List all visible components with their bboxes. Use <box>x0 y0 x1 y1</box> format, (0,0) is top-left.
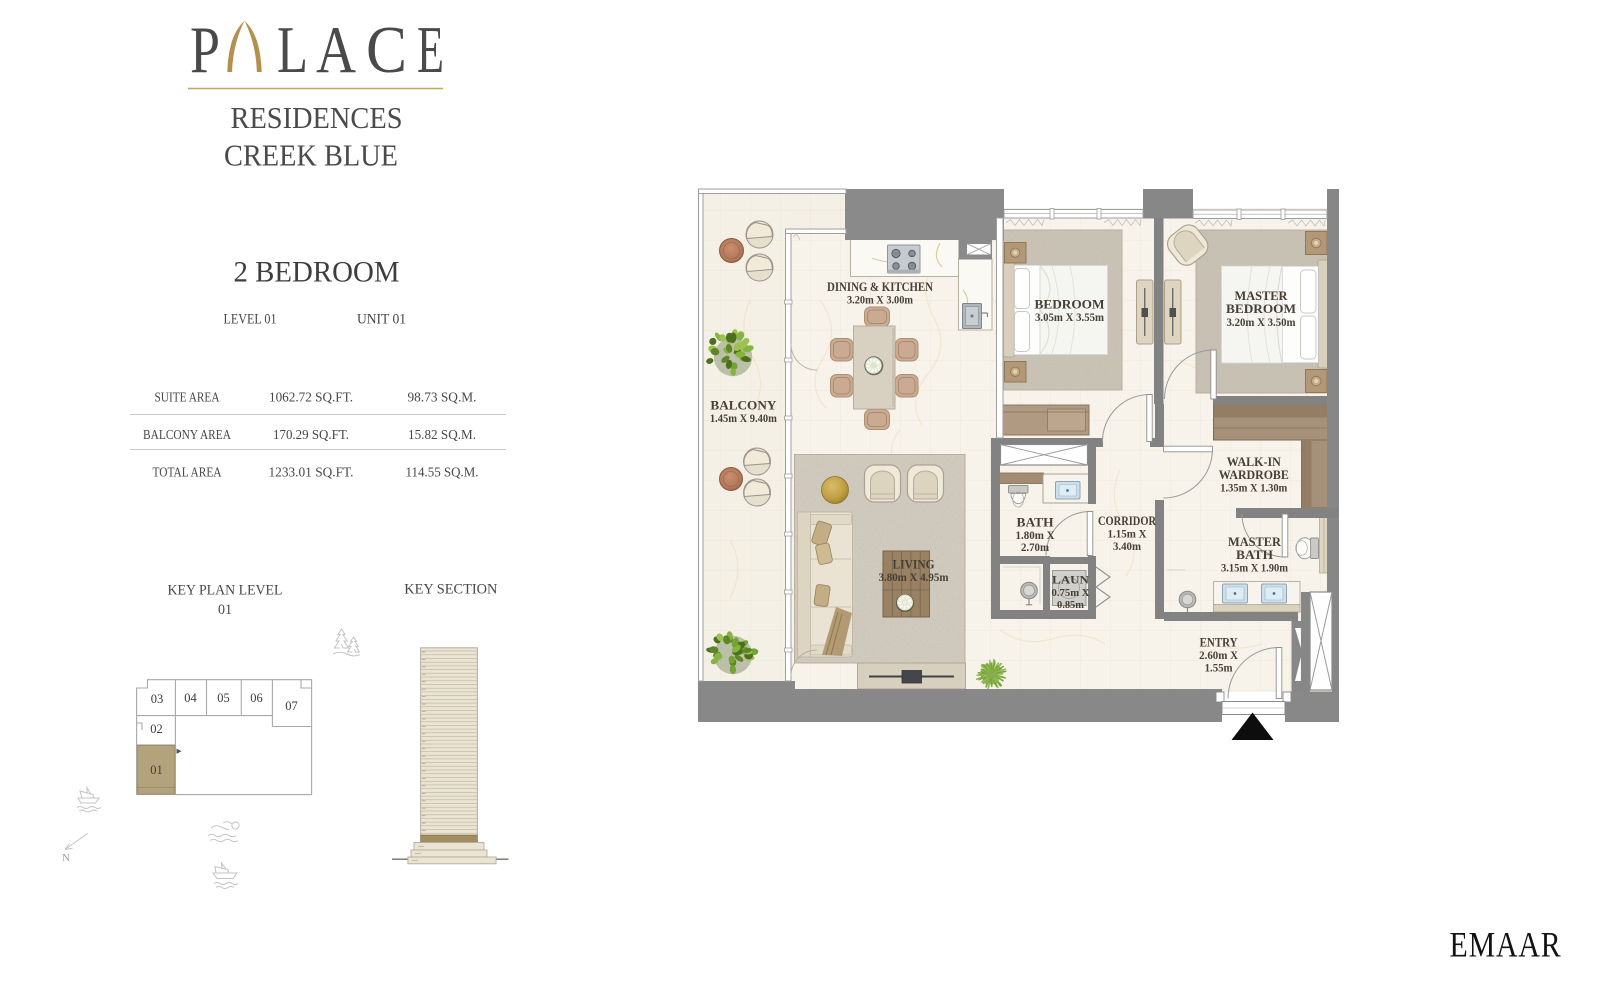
svg-text:BALCONY: BALCONY <box>710 399 776 413</box>
svg-text:1.35m X 1.30m: 1.35m X 1.30m <box>1220 483 1287 495</box>
svg-text:1233.01 SQ.FT.: 1233.01 SQ.FT. <box>269 465 354 480</box>
svg-text:2 BEDROOM: 2 BEDROOM <box>234 256 400 289</box>
svg-text:WARDROBE: WARDROBE <box>1219 468 1289 482</box>
svg-text:EMAAR: EMAAR <box>1450 925 1562 965</box>
svg-text:1062.72 SQ.FT.: 1062.72 SQ.FT. <box>269 390 353 405</box>
svg-text:3.20m X 3.00m: 3.20m X 3.00m <box>847 295 913 307</box>
svg-text:02: 02 <box>150 722 163 736</box>
svg-text:ENTRY: ENTRY <box>1200 636 1238 650</box>
svg-text:E: E <box>417 13 444 87</box>
svg-text:MASTER: MASTER <box>1235 289 1289 303</box>
svg-text:04: 04 <box>184 691 197 705</box>
svg-text:BATH: BATH <box>1017 516 1054 530</box>
svg-text:N: N <box>62 852 70 864</box>
svg-text:03: 03 <box>151 692 164 706</box>
svg-text:UNIT 01: UNIT 01 <box>357 312 406 328</box>
svg-text:TOTAL AREA: TOTAL AREA <box>153 465 222 480</box>
svg-text:1.15m X: 1.15m X <box>1108 529 1148 541</box>
svg-text:1.45m X 9.40m: 1.45m X 9.40m <box>710 413 777 425</box>
svg-text:3.80m X 4.95m: 3.80m X 4.95m <box>879 572 949 584</box>
svg-text:3.40m: 3.40m <box>1113 541 1141 553</box>
svg-text:3.05m X 3.55m: 3.05m X 3.55m <box>1035 312 1104 324</box>
svg-text:06: 06 <box>250 691 263 705</box>
svg-text:BALCONY AREA: BALCONY AREA <box>143 427 231 442</box>
svg-text:07: 07 <box>285 699 298 713</box>
svg-text:01: 01 <box>218 602 232 618</box>
svg-text:114.55 SQ.M.: 114.55 SQ.M. <box>406 465 479 480</box>
svg-text:SUITE AREA: SUITE AREA <box>155 390 220 405</box>
svg-text:L: L <box>277 13 308 87</box>
svg-text:KEY PLAN LEVEL: KEY PLAN LEVEL <box>168 583 283 599</box>
svg-text:1.55m: 1.55m <box>1205 663 1233 675</box>
svg-text:A: A <box>316 13 356 87</box>
svg-text:BATH: BATH <box>1236 548 1273 562</box>
svg-text:BEDROOM: BEDROOM <box>1226 302 1296 316</box>
svg-text:CREEK BLUE: CREEK BLUE <box>224 138 398 173</box>
svg-text:15.82 SQ.M.: 15.82 SQ.M. <box>408 427 476 442</box>
svg-text:2.70m: 2.70m <box>1021 542 1049 554</box>
svg-text:2.60m X: 2.60m X <box>1199 650 1239 662</box>
svg-text:3.20m X 3.50m: 3.20m X 3.50m <box>1227 317 1296 329</box>
svg-text:KEY SECTION: KEY SECTION <box>404 582 498 598</box>
svg-text:170.29 SQ.FT.: 170.29 SQ.FT. <box>273 427 349 442</box>
svg-text:1.80m X: 1.80m X <box>1016 530 1056 542</box>
svg-text:LAUN: LAUN <box>1052 573 1090 587</box>
svg-text:DINING & KITCHEN: DINING & KITCHEN <box>827 280 933 294</box>
svg-text:P: P <box>190 13 220 87</box>
svg-text:0.75m X: 0.75m X <box>1052 587 1090 599</box>
svg-text:RESIDENCES: RESIDENCES <box>231 100 403 135</box>
svg-text:01: 01 <box>150 763 163 777</box>
svg-text:CORRIDOR: CORRIDOR <box>1098 514 1157 528</box>
svg-text:LEVEL 01: LEVEL 01 <box>224 312 277 328</box>
svg-text:BEDROOM: BEDROOM <box>1035 298 1105 312</box>
svg-text:0.85m: 0.85m <box>1057 599 1084 611</box>
svg-text:3.15m X 1.90m: 3.15m X 1.90m <box>1221 563 1288 575</box>
svg-text:05: 05 <box>217 691 230 705</box>
svg-text:98.73 SQ.M.: 98.73 SQ.M. <box>408 390 477 405</box>
svg-text:LIVING: LIVING <box>893 558 935 572</box>
svg-text:C: C <box>366 13 407 87</box>
